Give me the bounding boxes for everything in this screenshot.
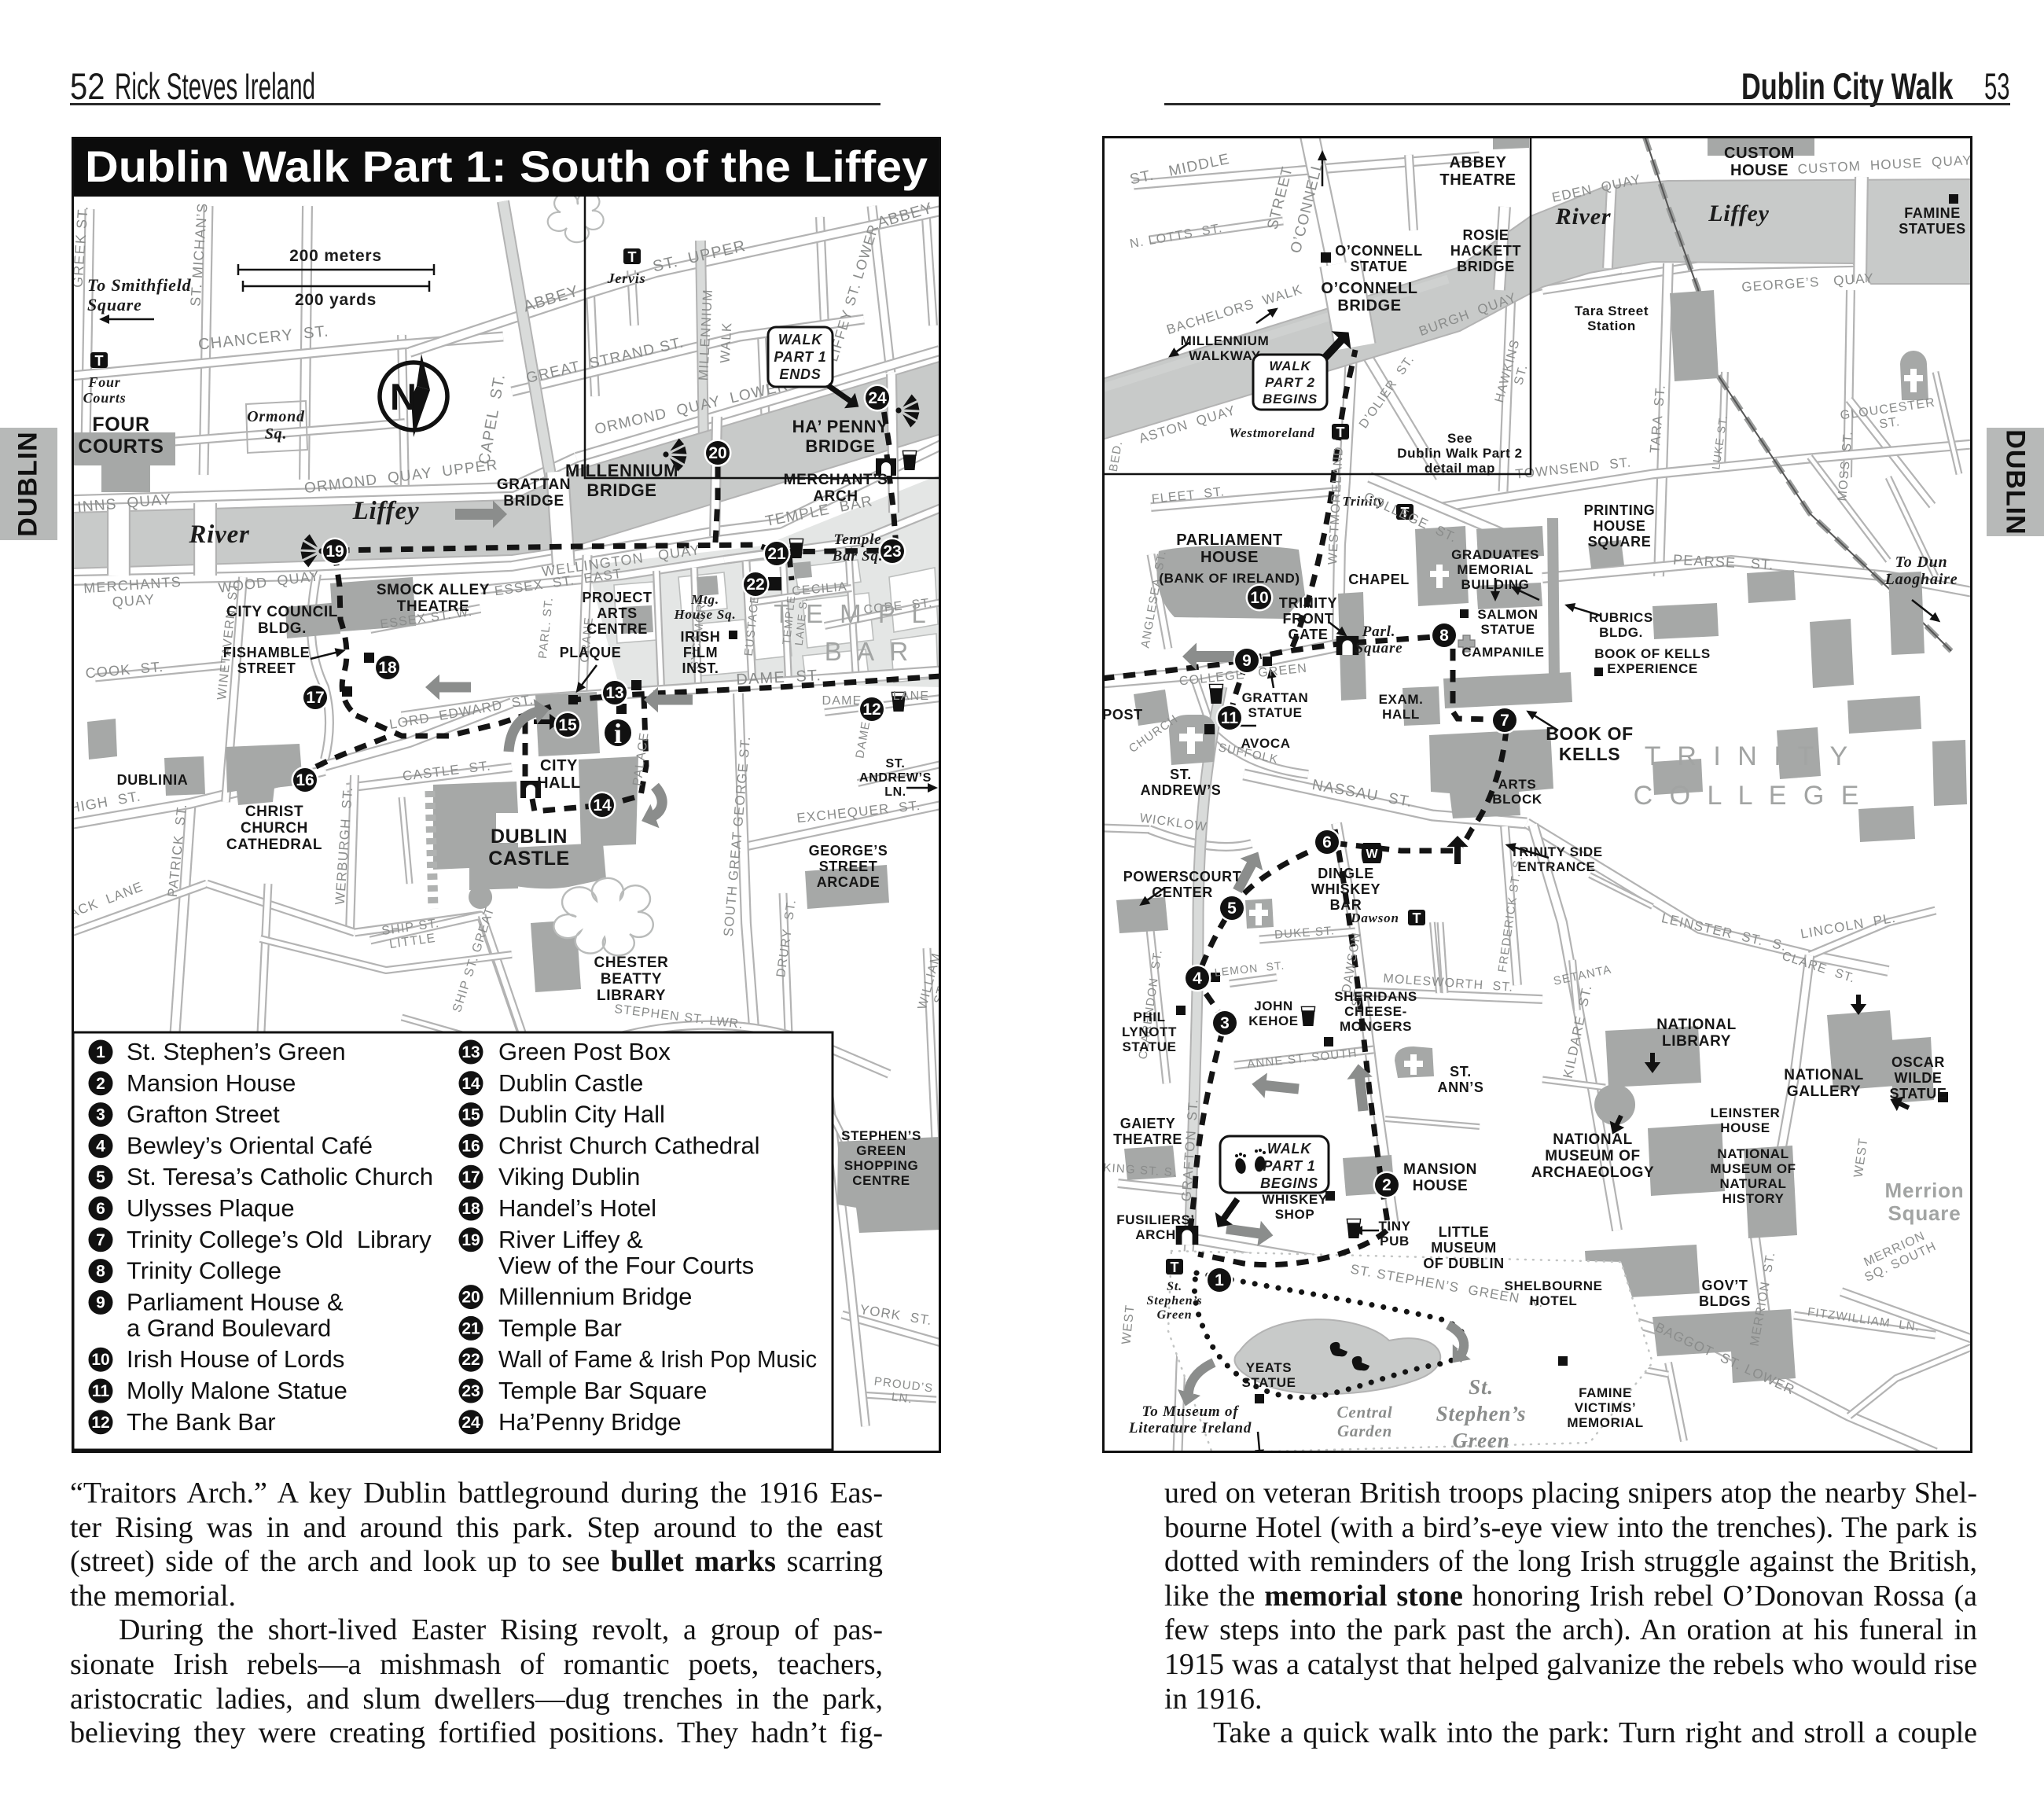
- svg-text:6: 6: [96, 1200, 105, 1218]
- svg-text:19: 19: [461, 1231, 480, 1249]
- svg-text:24: 24: [461, 1414, 480, 1432]
- svg-text:River: River: [1555, 204, 1612, 230]
- svg-text:To Museum ofLiterature Ireland: To Museum ofLiterature Ireland: [1128, 1403, 1252, 1436]
- svg-text:ARTSBLOCK: ARTSBLOCK: [1492, 777, 1542, 807]
- svg-text:10: 10: [1250, 589, 1268, 607]
- svg-text:Ha’Penny Bridge: Ha’Penny Bridge: [498, 1408, 682, 1436]
- svg-text:14: 14: [461, 1075, 480, 1093]
- svg-text:13: 13: [605, 684, 623, 702]
- svg-text:Green Post Box: Green Post Box: [498, 1038, 671, 1065]
- svg-text:16: 16: [461, 1137, 480, 1155]
- svg-text:BOOK OF KELLSEXPERIENCE: BOOK OF KELLSEXPERIENCE: [1594, 646, 1711, 676]
- svg-text:TINYPUB: TINYPUB: [1378, 1219, 1410, 1249]
- svg-text:Grafton Street: Grafton Street: [127, 1101, 280, 1128]
- svg-text:11: 11: [92, 1382, 110, 1400]
- svg-text:T: T: [1336, 425, 1345, 440]
- svg-text:18: 18: [378, 659, 397, 677]
- svg-text:Viking Dublin: Viking Dublin: [498, 1163, 640, 1190]
- svg-text:HA’ PENNYBRIDGE: HA’ PENNYBRIDGE: [792, 417, 889, 456]
- svg-text:STEPHEN’SGREENSHOPPINGCENTRE: STEPHEN’SGREENSHOPPINGCENTRE: [841, 1128, 921, 1188]
- svg-text:NATIONALMUSEUM OFNATURALHISTOR: NATIONALMUSEUM OFNATURALHISTORY: [1710, 1146, 1796, 1206]
- svg-text:20: 20: [708, 444, 726, 462]
- svg-text:OSCARWILDESTATUE: OSCARWILDESTATUE: [1890, 1054, 1947, 1102]
- svg-text:Handel’s Hotel: Handel’s Hotel: [498, 1194, 656, 1222]
- svg-text:T: T: [95, 353, 104, 369]
- svg-text:PLAQUE: PLAQUE: [560, 645, 622, 660]
- svg-text:St. Teresa’s Catholic Church: St. Teresa’s Catholic Church: [127, 1163, 433, 1190]
- svg-text:DAME: DAME: [822, 694, 862, 708]
- svg-text:2: 2: [1382, 1176, 1391, 1194]
- svg-text:12: 12: [91, 1414, 109, 1432]
- svg-text:CAMPANILE: CAMPANILE: [1461, 645, 1544, 660]
- svg-text:Jervis: Jervis: [607, 270, 646, 286]
- svg-text:5: 5: [1227, 899, 1237, 918]
- svg-text:1: 1: [1215, 1271, 1224, 1289]
- svg-text:MerrionSquare: MerrionSquare: [1885, 1179, 1965, 1225]
- svg-text:9: 9: [1242, 652, 1252, 670]
- svg-text:JOHNKEHOE: JOHNKEHOE: [1248, 999, 1298, 1028]
- svg-text:TempleBar Sq.: TempleBar Sq.: [832, 531, 884, 565]
- svg-text:TRINITY SIDEENTRANCE: TRINITY SIDEENTRANCE: [1510, 844, 1602, 874]
- svg-text:i: i: [614, 718, 622, 749]
- svg-text:17: 17: [306, 689, 324, 707]
- svg-text:AVOCA: AVOCA: [1241, 736, 1290, 751]
- svg-text:ABBEYTHEATRE: ABBEYTHEATRE: [1439, 154, 1516, 189]
- svg-text:NATIONALGALLERY: NATIONALGALLERY: [1784, 1067, 1864, 1100]
- svg-text:9: 9: [96, 1293, 105, 1311]
- svg-text:CUSTOMHOUSE: CUSTOMHOUSE: [1724, 145, 1795, 179]
- svg-text:Bewley’s Oriental Café: Bewley’s Oriental Café: [127, 1131, 373, 1159]
- svg-text:21: 21: [767, 545, 786, 563]
- svg-text:EXAM.HALL: EXAM.HALL: [1379, 692, 1424, 722]
- svg-text:12: 12: [862, 701, 880, 719]
- svg-text:T: T: [628, 249, 637, 265]
- svg-text:7: 7: [1500, 712, 1509, 730]
- svg-text:FAMINESTATUES: FAMINESTATUES: [1899, 205, 1966, 237]
- svg-text:SHERIDANSCHEESE-MONGERS: SHERIDANSCHEESE-MONGERS: [1334, 989, 1417, 1034]
- svg-text:23: 23: [461, 1382, 480, 1400]
- svg-text:WALKPART 2BEGINS: WALKPART 2BEGINS: [1263, 359, 1318, 406]
- svg-text:WALK: WALK: [718, 322, 735, 363]
- svg-text:DUBLINIA: DUBLINIA: [117, 772, 189, 788]
- svg-text:GRATTANBRIDGE: GRATTANBRIDGE: [497, 476, 571, 509]
- svg-text:WALKPART 1ENDS: WALKPART 1ENDS: [774, 332, 826, 382]
- svg-text:4: 4: [96, 1137, 105, 1155]
- svg-text:21: 21: [461, 1319, 480, 1337]
- svg-text:Wall of Fame & Irish Pop Music: Wall of Fame & Irish Pop Music: [498, 1345, 817, 1373]
- svg-text:Dublin City Hall: Dublin City Hall: [498, 1101, 665, 1128]
- svg-text:16: 16: [296, 771, 314, 789]
- svg-text:Dublin Walk Part 1: South of t: Dublin Walk Part 1: South of the Liffey: [85, 142, 928, 191]
- svg-text:200 yards: 200 yards: [295, 291, 377, 309]
- svg-text:23: 23: [883, 543, 901, 561]
- svg-text:15: 15: [461, 1106, 480, 1124]
- svg-text:22: 22: [746, 576, 764, 594]
- svg-text:22: 22: [461, 1351, 480, 1369]
- svg-text:Irish House of Lords: Irish House of Lords: [127, 1345, 344, 1373]
- svg-text:BOOK OFKELLS: BOOK OFKELLS: [1546, 723, 1634, 764]
- svg-text:PRINTINGHOUSESQUARE: PRINTINGHOUSESQUARE: [1584, 502, 1656, 550]
- svg-text:5: 5: [96, 1168, 105, 1186]
- svg-text:Christ Church Cathedral: Christ Church Cathedral: [498, 1131, 760, 1159]
- svg-text:(BANK OF IRELAND): (BANK OF IRELAND): [1159, 571, 1300, 586]
- svg-text:Trinity College: Trinity College: [127, 1257, 281, 1285]
- svg-text:4: 4: [1193, 969, 1202, 988]
- svg-text:N: N: [390, 376, 417, 417]
- svg-text:GRATTANSTATUE: GRATTANSTATUE: [1242, 690, 1309, 720]
- svg-text:10: 10: [91, 1351, 109, 1369]
- svg-text:LANE: LANE: [893, 690, 930, 703]
- svg-text:NATIONALLIBRARY: NATIONALLIBRARY: [1656, 1017, 1737, 1050]
- svg-text:To DunLaoghaire: To DunLaoghaire: [1884, 554, 1958, 588]
- svg-text:15: 15: [558, 716, 577, 734]
- svg-text:GOV’TBLDGS: GOV’TBLDGS: [1699, 1278, 1751, 1309]
- svg-text:Trinity College’s Old Library: Trinity College’s Old Library: [127, 1226, 432, 1253]
- svg-text:20: 20: [461, 1289, 480, 1307]
- svg-text:Molly Malone Statue: Molly Malone Statue: [127, 1377, 347, 1404]
- svg-text:CentralGarden: CentralGarden: [1337, 1403, 1393, 1440]
- svg-text:24: 24: [868, 389, 887, 407]
- svg-text:MANSIONHOUSE: MANSIONHOUSE: [1403, 1161, 1477, 1194]
- svg-text:T: T: [1171, 1260, 1179, 1275]
- svg-text:T: T: [1413, 910, 1421, 926]
- svg-text:3: 3: [1220, 1014, 1230, 1032]
- svg-text:Millennium Bridge: Millennium Bridge: [498, 1283, 692, 1311]
- svg-text:The Bank Bar: The Bank Bar: [127, 1408, 276, 1436]
- svg-text:W: W: [1366, 848, 1378, 861]
- svg-text:GAIETYTHEATRE: GAIETYTHEATRE: [1113, 1116, 1182, 1147]
- svg-text:17: 17: [461, 1168, 480, 1186]
- svg-text:YEATSSTATUE: YEATSSTATUE: [1241, 1360, 1296, 1390]
- svg-text:14: 14: [593, 796, 612, 815]
- svg-text:19: 19: [325, 543, 344, 561]
- svg-text:GEORGE’SSTREETARCADE: GEORGE’SSTREETARCADE: [809, 843, 888, 890]
- svg-text:St. Stephen’s Green: St. Stephen’s Green: [127, 1038, 346, 1065]
- svg-text:CHAPEL: CHAPEL: [1348, 572, 1410, 587]
- svg-text:8: 8: [1439, 627, 1449, 645]
- svg-text:3: 3: [96, 1106, 105, 1124]
- svg-text:POST: POST: [1102, 707, 1142, 723]
- svg-text:CITYHALL: CITYHALL: [537, 757, 581, 792]
- svg-text:River: River: [188, 520, 250, 549]
- svg-text:13: 13: [461, 1043, 480, 1061]
- svg-text:Dublin Castle: Dublin Castle: [498, 1069, 643, 1097]
- svg-text:IRISHFILMINST.: IRISHFILMINST.: [680, 629, 720, 676]
- svg-text:Ulysses Plaque: Ulysses Plaque: [127, 1194, 295, 1222]
- svg-text:Westmoreland: Westmoreland: [1229, 425, 1314, 440]
- svg-text:1: 1: [96, 1043, 105, 1061]
- svg-text:WALKPART 1BEGINS: WALKPART 1BEGINS: [1260, 1141, 1318, 1191]
- svg-text:11: 11: [1221, 709, 1239, 727]
- svg-text:Liffey: Liffey: [1708, 200, 1770, 226]
- svg-text:DUBLINCASTLE: DUBLINCASTLE: [488, 826, 570, 870]
- svg-text:Parliament House &a Grand Boul: Parliament House &a Grand Boulevard: [127, 1288, 344, 1341]
- svg-text:Liffey: Liffey: [352, 497, 420, 525]
- svg-text:7: 7: [96, 1231, 105, 1249]
- svg-text:Temple Bar Square: Temple Bar Square: [498, 1377, 707, 1404]
- svg-text:LEINSTERHOUSE: LEINSTERHOUSE: [1711, 1105, 1781, 1135]
- svg-text:Temple Bar: Temple Bar: [498, 1314, 622, 1341]
- svg-text:2: 2: [96, 1075, 105, 1093]
- svg-text:CHESTERBEATTYLIBRARY: CHESTERBEATTYLIBRARY: [594, 954, 669, 1004]
- svg-text:6: 6: [1322, 833, 1332, 851]
- svg-text:Mansion House: Mansion House: [127, 1069, 296, 1097]
- svg-text:8: 8: [96, 1263, 105, 1281]
- svg-text:SALMONSTATUE: SALMONSTATUE: [1477, 607, 1538, 637]
- svg-text:FourCourts: FourCourts: [83, 374, 127, 406]
- svg-text:18: 18: [461, 1200, 480, 1218]
- svg-text:200 meters: 200 meters: [289, 247, 382, 265]
